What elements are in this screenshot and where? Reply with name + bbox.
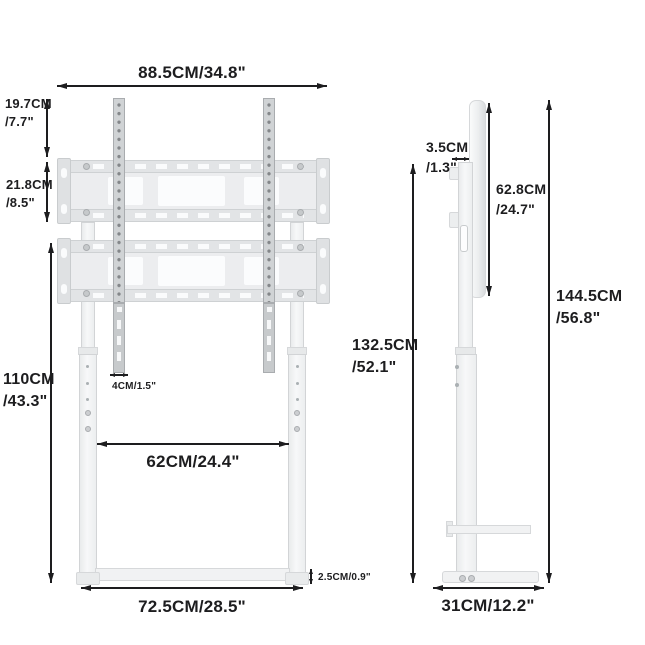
dim-label-bracket-plate-height: 62.8CM /24.7" [496, 180, 546, 219]
leg-hole [86, 398, 89, 401]
upper-bracket-slot-rail-bottom [70, 209, 317, 222]
side-column-bolt [455, 383, 459, 387]
bracket-cutout [158, 256, 225, 286]
lower-bracket-slot-rail-top [70, 240, 317, 253]
bracket-bolt [83, 163, 90, 170]
dim-label-base-width: 72.5CM/28.5" [81, 595, 303, 619]
side-shelf [447, 525, 531, 534]
dim-label-base-depth: 31CM/12.2" [428, 594, 548, 618]
base-knob [459, 575, 466, 582]
dim-label-bracket-depth: 3.5CM /1.3" [426, 138, 468, 177]
base-knob [468, 575, 475, 582]
bracket-bolt [83, 290, 90, 297]
bracket-bolt [297, 163, 304, 170]
side-column-bolt [455, 365, 459, 369]
leg-lock-knob [85, 426, 91, 432]
dim-label-bracket-height: 21.8CM /8.5" [6, 176, 53, 212]
dim-arrow-base-depth [433, 587, 544, 589]
front-right-foot [285, 572, 309, 585]
side-base-foot [442, 571, 539, 583]
bracket-bolt [297, 244, 304, 251]
bracket-bolt [83, 244, 90, 251]
dim-value-in: /1.3" [426, 158, 468, 178]
front-right-leg-lower [288, 354, 306, 582]
dim-arrow-base-thickness [310, 569, 312, 584]
bracket-bolt [297, 290, 304, 297]
front-left-leg-lower [79, 354, 97, 582]
dim-label-total-height: 144.5CM /56.8" [556, 286, 622, 331]
dim-value-in: /7.7" [5, 113, 52, 131]
leg-lock-knob [85, 410, 91, 416]
dim-arrow-total-height [548, 100, 550, 583]
leg-lock-knob [294, 426, 300, 432]
dim-value-cm: 21.8CM [6, 176, 53, 194]
leg-hole [86, 382, 89, 385]
dim-value-cm: 19.7CM [5, 95, 52, 113]
side-column-lower [456, 354, 477, 578]
vesa-rail-right [263, 98, 275, 303]
lower-bracket-end-cap-right [316, 238, 330, 304]
dim-value-cm: 110CM [3, 369, 55, 391]
dim-arrow-inner-width [97, 443, 289, 445]
bracket-bolt [83, 209, 90, 216]
vesa-rail-left [113, 98, 125, 303]
dim-arrow-rail-width [110, 374, 128, 376]
tv-stand-dimension-diagram: 88.5CM/34.8" 19.7CM /7.7" 21.8CM /8.5" 1… [0, 0, 645, 645]
upper-bracket-slot-rail-top [70, 160, 317, 173]
upper-bracket-end-cap-left [57, 158, 71, 224]
dim-arrow-base-width [81, 587, 303, 589]
dim-value-cm: 62.8CM [496, 180, 546, 200]
lower-bracket-slot-rail-bottom [70, 289, 317, 302]
dim-value-cm: 144.5CM [556, 286, 622, 308]
dim-value-in: /8.5" [6, 194, 53, 212]
bracket-cutout [158, 176, 225, 206]
dim-value-cm: 132.5CM [352, 335, 418, 357]
dim-value-in: /43.3" [3, 391, 55, 413]
dim-arrow-bracket-plate-height [488, 103, 490, 296]
bracket-bolt [297, 209, 304, 216]
vesa-rail-left-lower [113, 303, 125, 373]
leg-hole [296, 398, 299, 401]
dim-value-cm: 3.5CM [426, 138, 468, 158]
dim-value-in: /24.7" [496, 200, 546, 220]
front-left-foot [76, 572, 100, 585]
vesa-rail-right-lower [263, 303, 275, 373]
dim-label-column-height: 132.5CM /52.1" [352, 335, 418, 380]
dim-arrow-top-width [57, 85, 327, 87]
dim-label-top-width: 88.5CM/34.8" [57, 61, 327, 85]
dim-label-base-thickness: 2.5CM/0.9" [318, 571, 371, 585]
leg-hole [296, 365, 299, 368]
side-column-upper [458, 162, 473, 352]
dim-value-in: /52.1" [352, 357, 418, 379]
side-handle [460, 225, 468, 252]
dim-label-rail-overhang: 19.7CM /7.7" [5, 95, 52, 131]
leg-hole [296, 382, 299, 385]
dim-label-rail-width: 4CM/1.5" [112, 380, 156, 394]
upper-bracket-end-cap-right [316, 158, 330, 224]
front-bottom-bar [95, 568, 290, 581]
leg-lock-knob [294, 410, 300, 416]
dim-label-inner-width: 62CM/24.4" [97, 450, 289, 474]
leg-hole [86, 365, 89, 368]
dim-value-in: /56.8" [556, 308, 622, 330]
dim-label-stand-height: 110CM /43.3" [3, 369, 55, 414]
lower-bracket-end-cap-left [57, 238, 71, 304]
